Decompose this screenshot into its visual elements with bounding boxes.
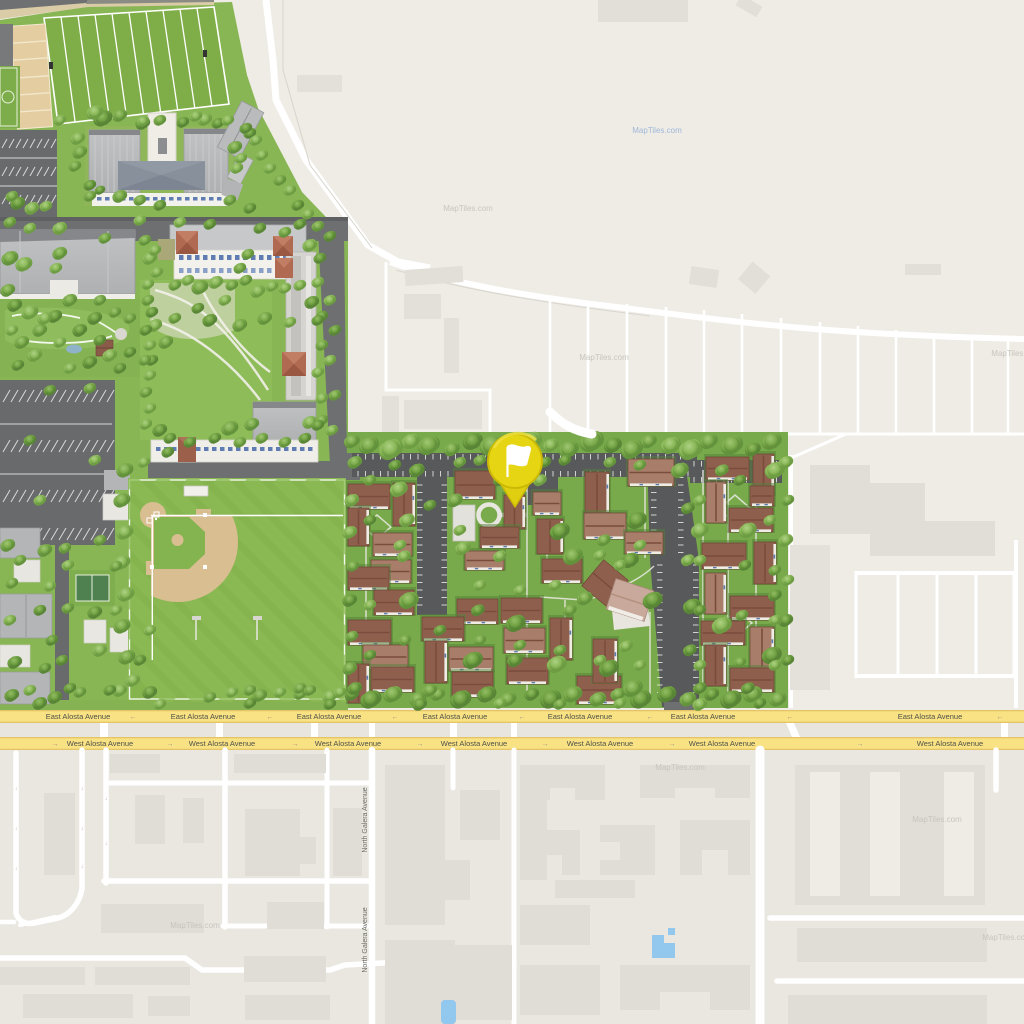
svg-text:West Alosta Avenue: West Alosta Avenue [689,739,755,748]
svg-text:↓: ↓ [105,841,108,847]
svg-text:East Alosta Avenue: East Alosta Avenue [548,712,613,721]
svg-text:West Alosta Avenue: West Alosta Avenue [567,739,633,748]
svg-text:MapTiles.com: MapTiles.com [982,933,1024,942]
svg-text:West Alosta Avenue: West Alosta Avenue [67,739,133,748]
svg-text:MapTiles.com: MapTiles.com [632,126,682,135]
svg-text:MapTiles.com: MapTiles.com [443,204,493,213]
svg-text:MapTiles.com: MapTiles.com [655,763,705,772]
svg-text:East Alosta Avenue: East Alosta Avenue [297,712,362,721]
svg-text:West Alosta Avenue: West Alosta Avenue [917,739,983,748]
svg-text:↓: ↓ [15,786,18,792]
svg-text:West Alosta Avenue: West Alosta Avenue [189,739,255,748]
svg-text:East Alosta Avenue: East Alosta Avenue [898,712,963,721]
svg-text:←: ← [647,714,654,721]
svg-text:MapTiles.com: MapTiles.com [579,353,629,362]
svg-text:→: → [292,741,299,748]
svg-text:→: → [417,741,424,748]
svg-text:←: ← [130,714,137,721]
svg-text:West Alosta Avenue: West Alosta Avenue [315,739,381,748]
svg-text:MapTiles.com: MapTiles.com [170,921,220,930]
svg-text:↓: ↓ [15,826,18,832]
svg-text:→: → [542,741,549,748]
svg-text:↓: ↓ [81,786,84,792]
svg-text:→: → [857,741,864,748]
svg-text:←: ← [267,714,274,721]
svg-text:↓: ↓ [81,826,84,832]
svg-text:MapTiles.com: MapTiles.com [912,815,962,824]
svg-text:East Alosta Avenue: East Alosta Avenue [46,712,111,721]
svg-text:←: ← [997,714,1004,721]
svg-text:←: ← [787,714,794,721]
svg-text:↓: ↓ [15,866,18,872]
svg-text:←: ← [392,714,399,721]
svg-text:←: ← [519,714,526,721]
svg-text:East Alosta Avenue: East Alosta Avenue [171,712,236,721]
svg-text:MapTiles.com: MapTiles.com [991,349,1024,358]
svg-text:↓: ↓ [81,864,84,870]
svg-text:→: → [669,741,676,748]
svg-text:North Galera Avenue: North Galera Avenue [362,787,369,852]
svg-text:→: → [52,741,59,748]
svg-text:East Alosta Avenue: East Alosta Avenue [671,712,736,721]
svg-text:North Galera Avenue: North Galera Avenue [362,907,369,972]
svg-text:East Alosta Avenue: East Alosta Avenue [423,712,488,721]
svg-text:→: → [167,741,174,748]
svg-text:West Alosta Avenue: West Alosta Avenue [441,739,507,748]
svg-text:↓: ↓ [105,796,108,802]
